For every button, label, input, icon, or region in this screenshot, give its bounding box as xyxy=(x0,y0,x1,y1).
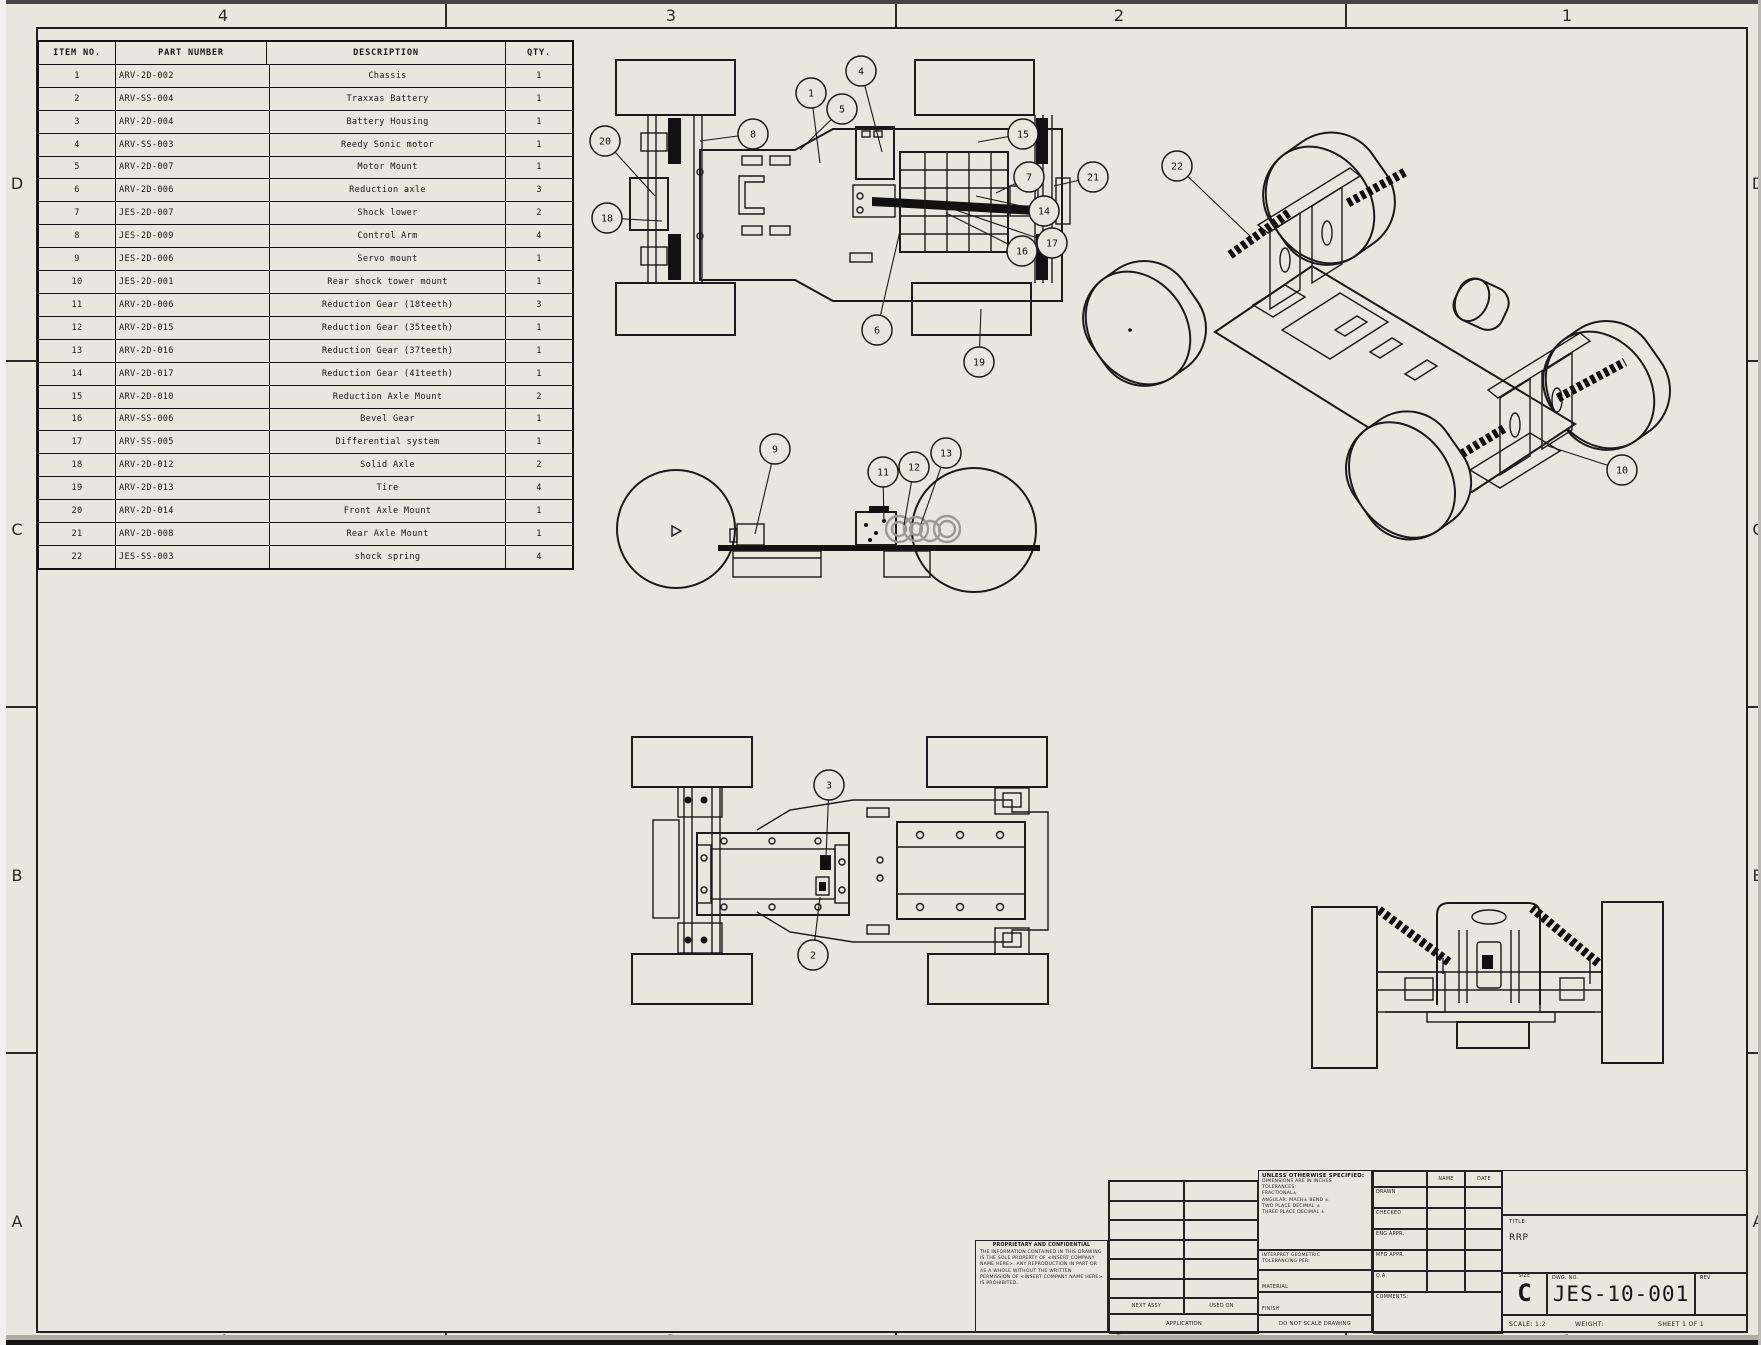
balloon-number-19: 19 xyxy=(973,358,985,369)
finish-cell: FINISH xyxy=(1258,1292,1372,1315)
name-header: NAME xyxy=(1427,1171,1465,1187)
dwg-no-label: DWG. NO. xyxy=(1548,1274,1694,1281)
proprietary-body: THE INFORMATION CONTAINED IN THIS DRAWIN… xyxy=(980,1250,1103,1287)
weight-label: WEIGHT: xyxy=(1575,1321,1604,1328)
size-value: C xyxy=(1503,1281,1546,1305)
zone-label-left-A: A xyxy=(8,1212,26,1231)
balloon-number-15: 15 xyxy=(1017,130,1029,141)
application-grid-cell xyxy=(1109,1181,1184,1201)
application-grid-cell xyxy=(1109,1201,1184,1221)
title-cell: TITLE: RRP xyxy=(1502,1215,1748,1273)
balloon-number-6: 6 xyxy=(874,326,880,337)
balloon-number-1: 1 xyxy=(808,89,814,100)
next-assy-label: NEXT ASSY xyxy=(1109,1298,1184,1314)
do-not-scale-label: DO NOT SCALE DRAWING xyxy=(1279,1321,1351,1327)
interpret-label: INTERPRET GEOMETRIC TOLERANCING PER: xyxy=(1262,1253,1332,1265)
balloon-number-2: 2 xyxy=(810,951,816,962)
application-grid-cell xyxy=(1184,1259,1259,1279)
dwg-no-value: JES-10-001 xyxy=(1548,1282,1694,1306)
proprietary-title: PROPRIETARY AND CONFIDENTIAL xyxy=(980,1243,1103,1248)
date-header: DATE xyxy=(1465,1171,1503,1187)
application-grid-cell xyxy=(1184,1220,1259,1240)
balloon-number-17: 17 xyxy=(1046,239,1058,250)
zone-label-left-B: B xyxy=(8,866,26,885)
tol-line: THREE PLACE DECIMAL ± xyxy=(1262,1210,1368,1216)
interpret-cell: INTERPRET GEOMETRIC TOLERANCING PER: xyxy=(1258,1250,1372,1270)
company-cell xyxy=(1502,1170,1748,1215)
drawing-views: 20188154157211417166199111213322210 xyxy=(0,0,1761,1345)
title-value: RRP xyxy=(1509,1233,1741,1243)
material-cell: MATERIAL xyxy=(1258,1270,1372,1292)
zone-label-top-3: 3 xyxy=(662,6,680,25)
balloon-number-21: 21 xyxy=(1087,173,1099,184)
application-grid-cell xyxy=(1109,1259,1184,1279)
dwg-no-cell: DWG. NO. JES-10-001 xyxy=(1547,1273,1695,1315)
size-cell: SIZE C xyxy=(1502,1273,1547,1315)
drawing-sheet: ITEM NO.PART NUMBERDESCRIPTIONQTY. 1ARV-… xyxy=(0,0,1761,1345)
scale-row: SCALE: 1:2 WEIGHT: SHEET 1 OF 1 xyxy=(1502,1315,1748,1333)
balloon-number-10: 10 xyxy=(1616,466,1628,477)
scale-value: SCALE: 1:2 xyxy=(1509,1321,1546,1328)
application-grid-cell xyxy=(1184,1181,1259,1201)
zone-label-top-4: 4 xyxy=(214,6,232,25)
balloon-number-5: 5 xyxy=(839,105,845,116)
application-grid-cell xyxy=(1184,1279,1259,1299)
side-view-drawing xyxy=(617,468,1040,592)
sheet-value: SHEET 1 OF 1 xyxy=(1658,1321,1704,1328)
balloon-number-4: 4 xyxy=(858,67,864,78)
screen-bottom-band xyxy=(0,1340,1761,1345)
balloon-number-11: 11 xyxy=(877,468,889,479)
balloon-number-22: 22 xyxy=(1171,162,1183,173)
application-grid-cell xyxy=(1109,1240,1184,1260)
zone-label-left-D: D xyxy=(8,174,26,193)
used-on-label: USED ON xyxy=(1184,1298,1259,1314)
balloon-number-9: 9 xyxy=(772,445,778,456)
eng-appr-label: ENG APPR. xyxy=(1373,1229,1427,1250)
screen-left-strip xyxy=(0,0,6,1345)
balloon-number-18: 18 xyxy=(601,214,613,225)
signoff-grid: NAME DATE DRAWN CHECKED ENG APPR. MFG AP… xyxy=(1372,1170,1502,1333)
rear-view-drawing xyxy=(1312,902,1663,1068)
application-grid-cell xyxy=(1184,1201,1259,1221)
proprietary-note: PROPRIETARY AND CONFIDENTIAL THE INFORMA… xyxy=(975,1240,1108,1333)
application-grid-cell xyxy=(1184,1240,1259,1260)
balloon-number-7: 7 xyxy=(1026,173,1032,184)
balloon-number-8: 8 xyxy=(750,130,756,141)
comments-label: COMMENTS: xyxy=(1373,1292,1503,1334)
zone-label-left-C: C xyxy=(8,520,26,539)
qa-label: Q.A. xyxy=(1373,1271,1427,1292)
do-not-scale-cell: DO NOT SCALE DRAWING xyxy=(1258,1315,1372,1333)
balloon-number-3: 3 xyxy=(826,781,832,792)
application-grid: NEXT ASSY USED ON APPLICATION xyxy=(1108,1180,1258,1333)
application-grid-cell xyxy=(1109,1279,1184,1299)
application-label: APPLICATION xyxy=(1109,1314,1259,1334)
balloon-number-20: 20 xyxy=(599,137,611,148)
rev-cell: REV xyxy=(1695,1273,1748,1315)
screen-top-band xyxy=(0,0,1761,4)
finish-label: FINISH xyxy=(1262,1307,1280,1312)
zone-label-top-1: 1 xyxy=(1558,6,1576,25)
zone-label-top-2: 2 xyxy=(1110,6,1128,25)
balloon-number-12: 12 xyxy=(908,463,920,474)
isometric-view-drawing xyxy=(1064,113,1689,558)
checked-label: CHECKED xyxy=(1373,1208,1427,1229)
balloon-number-14: 14 xyxy=(1038,207,1050,218)
drawn-label: DRAWN xyxy=(1373,1187,1427,1208)
rev-label: REV xyxy=(1696,1274,1747,1281)
balloon-number-13: 13 xyxy=(940,449,952,460)
tolerance-block: UNLESS OTHERWISE SPECIFIED: DIMENSIONS A… xyxy=(1258,1170,1372,1250)
title-label: TITLE: xyxy=(1509,1219,1741,1225)
balloon-number-16: 16 xyxy=(1016,247,1028,258)
application-grid-cell xyxy=(1109,1220,1184,1240)
material-label: MATERIAL xyxy=(1262,1285,1288,1290)
title-block: PROPRIETARY AND CONFIDENTIAL THE INFORMA… xyxy=(975,1170,1748,1333)
mfg-appr-label: MFG APPR. xyxy=(1373,1250,1427,1271)
